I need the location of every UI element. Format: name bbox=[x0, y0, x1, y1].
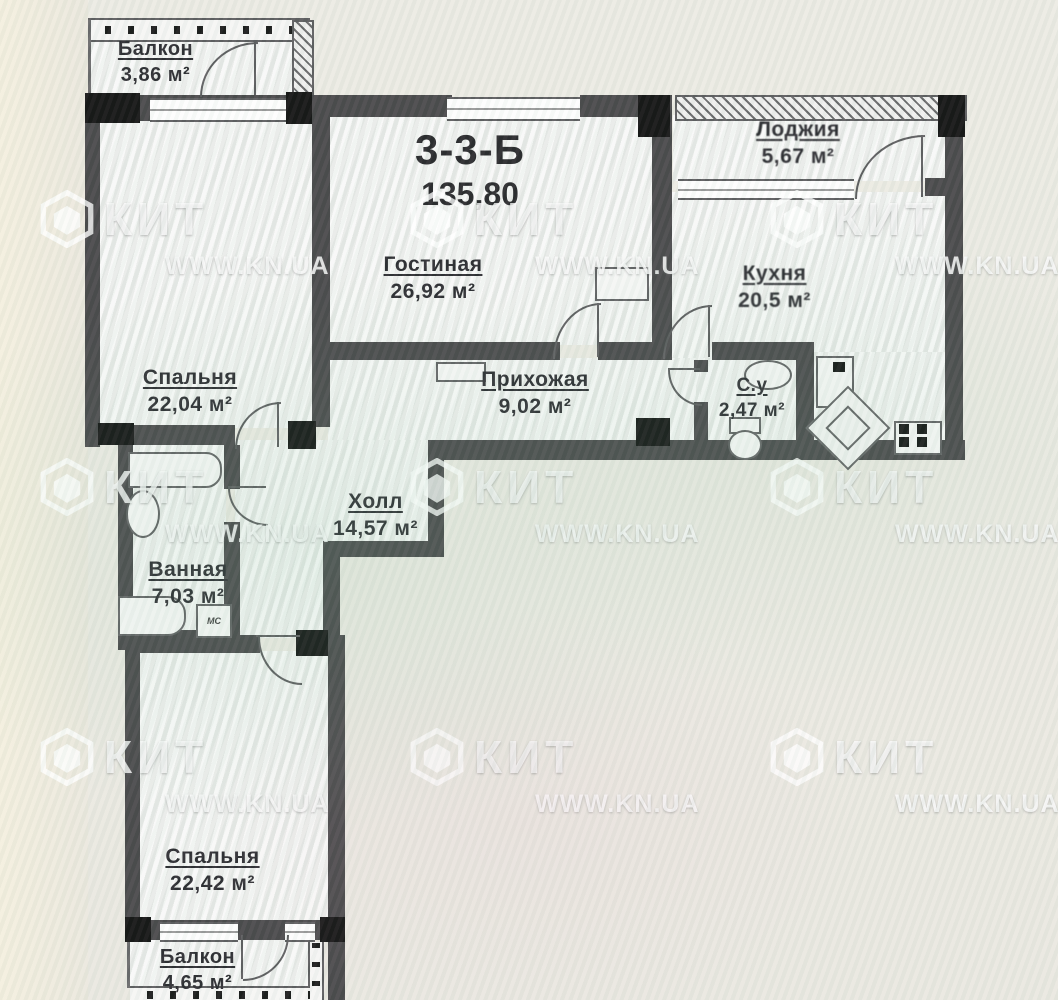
room-label-balcony-bottom: Балкон 4,65 м² bbox=[135, 946, 260, 995]
wall bbox=[224, 445, 240, 489]
column bbox=[85, 93, 140, 123]
wall bbox=[312, 95, 452, 117]
kit-watermark: КИТ bbox=[410, 190, 578, 248]
kn-ua-watermark: WWW.KN.UA bbox=[535, 790, 700, 819]
kit-hexagon-icon bbox=[770, 458, 824, 516]
door-leaf bbox=[708, 305, 710, 357]
column bbox=[125, 917, 151, 942]
kn-ua-watermark: WWW.KN.UA bbox=[895, 252, 1058, 281]
kit-watermark-text: КИТ bbox=[104, 192, 208, 246]
kit-hexagon-icon bbox=[410, 190, 464, 248]
door-leaf bbox=[668, 368, 700, 370]
kit-hexagon-icon bbox=[40, 458, 94, 516]
unit-number: 3-3-Б bbox=[378, 126, 562, 174]
wall bbox=[85, 95, 100, 447]
room-label-loggia: Лоджия 5,67 м² bbox=[733, 118, 863, 169]
kit-watermark: КИТ bbox=[40, 728, 208, 786]
kn-ua-watermark: WWW.KN.UA bbox=[535, 520, 700, 549]
window bbox=[285, 922, 315, 942]
toilet bbox=[728, 430, 762, 460]
wall bbox=[125, 635, 260, 653]
kit-watermark: КИТ bbox=[770, 190, 938, 248]
wall bbox=[312, 342, 560, 360]
balcony-edge bbox=[127, 940, 130, 988]
kit-watermark: КИТ bbox=[40, 190, 208, 248]
kn-ua-watermark: WWW.KN.UA bbox=[165, 252, 330, 281]
wall bbox=[328, 635, 345, 1000]
kit-watermark-text: КИТ bbox=[834, 192, 938, 246]
stove-burner bbox=[899, 424, 909, 434]
hatched-wall bbox=[292, 20, 314, 99]
kit-watermark-text: КИТ bbox=[834, 460, 938, 514]
room-label-bathroom: Ванная 7,03 м² bbox=[128, 558, 248, 609]
kit-watermark: КИТ bbox=[770, 458, 938, 516]
stove-burner bbox=[917, 437, 927, 447]
kit-hexagon-icon bbox=[40, 190, 94, 248]
kit-hexagon-icon bbox=[410, 728, 464, 786]
kit-watermark-text: КИТ bbox=[474, 192, 578, 246]
kit-hexagon-icon bbox=[770, 190, 824, 248]
kn-ua-watermark: WWW.KN.UA bbox=[895, 790, 1058, 819]
wall bbox=[428, 440, 965, 460]
wall bbox=[598, 342, 662, 360]
wall bbox=[323, 557, 340, 637]
column bbox=[286, 92, 312, 124]
kit-watermark-text: КИТ bbox=[474, 460, 578, 514]
kit-hexagon-icon bbox=[410, 458, 464, 516]
kit-watermark: КИТ bbox=[410, 458, 578, 516]
room-label-bedroom-bottom: Спальня 22,42 м² bbox=[140, 845, 285, 896]
stove-burner bbox=[917, 424, 927, 434]
kn-ua-watermark: WWW.KN.UA bbox=[165, 790, 330, 819]
kit-watermark: КИТ bbox=[40, 458, 208, 516]
kit-watermark-text: КИТ bbox=[834, 730, 938, 784]
door-leaf bbox=[597, 303, 599, 357]
stove-burner bbox=[899, 437, 909, 447]
door-leaf bbox=[254, 42, 256, 95]
door-leaf bbox=[921, 135, 923, 197]
room-label-living-room: Гостиная 26,92 м² bbox=[358, 253, 508, 304]
washing-machine: МС bbox=[196, 604, 232, 638]
kn-ua-watermark: WWW.KN.UA bbox=[165, 520, 330, 549]
window bbox=[160, 922, 238, 942]
floor-hall-narrow bbox=[238, 543, 325, 638]
room-label-bedroom-top: Спальня 22,04 м² bbox=[120, 366, 260, 417]
door-leaf bbox=[228, 486, 266, 488]
kit-hexagon-icon bbox=[40, 728, 94, 786]
room-label-entry-hall: Прихожая 9,02 м² bbox=[465, 368, 605, 419]
washing-machine-label: МС bbox=[198, 606, 230, 636]
window bbox=[447, 97, 580, 121]
room-label-kitchen: Кухня 20,5 м² bbox=[712, 262, 837, 313]
kit-watermark-text: КИТ bbox=[474, 730, 578, 784]
kn-ua-watermark: WWW.KN.UA bbox=[895, 520, 1058, 549]
balcony-railing bbox=[308, 942, 324, 1000]
wall bbox=[712, 342, 814, 360]
floor-plan-photo: МС 3-3-Б 135,80 Балкон 3,86 м² Спальня 2… bbox=[0, 0, 1058, 1000]
door-leaf bbox=[277, 402, 279, 447]
kit-hexagon-icon bbox=[770, 728, 824, 786]
kit-watermark-text: КИТ bbox=[104, 460, 208, 514]
room-label-wc: С.у 2,47 м² bbox=[712, 375, 792, 422]
column bbox=[638, 95, 670, 137]
column bbox=[98, 423, 134, 445]
column bbox=[288, 421, 316, 449]
kit-watermark: КИТ bbox=[410, 728, 578, 786]
kit-watermark-text: КИТ bbox=[104, 730, 208, 784]
kn-ua-watermark: WWW.KN.UA bbox=[535, 252, 700, 281]
door-leaf bbox=[256, 635, 300, 637]
balcony-edge bbox=[88, 20, 91, 96]
column bbox=[320, 917, 345, 942]
kit-watermark: КИТ bbox=[770, 728, 938, 786]
column bbox=[636, 418, 670, 446]
wall bbox=[125, 635, 140, 940]
column bbox=[938, 95, 965, 137]
wall bbox=[323, 541, 444, 557]
window bbox=[150, 98, 288, 122]
cabinet-detail bbox=[833, 362, 845, 372]
wall bbox=[694, 402, 708, 442]
room-label-balcony-top: Балкон 3,86 м² bbox=[93, 38, 218, 87]
